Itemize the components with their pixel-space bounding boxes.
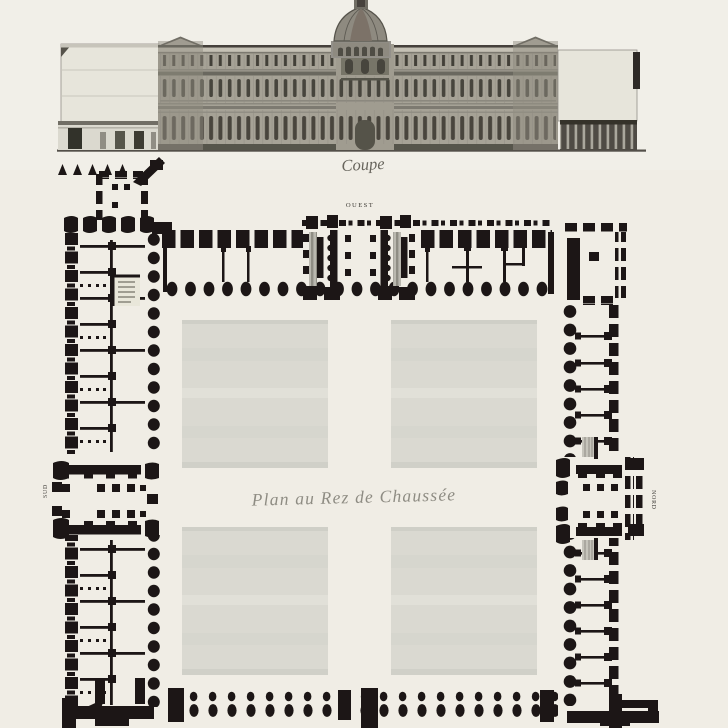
svg-text:OUEST: OUEST [346, 202, 374, 209]
svg-text:Coupe: Coupe [341, 154, 385, 175]
svg-text:NORD: NORD [650, 490, 656, 510]
svg-text:SUD: SUD [43, 484, 49, 498]
